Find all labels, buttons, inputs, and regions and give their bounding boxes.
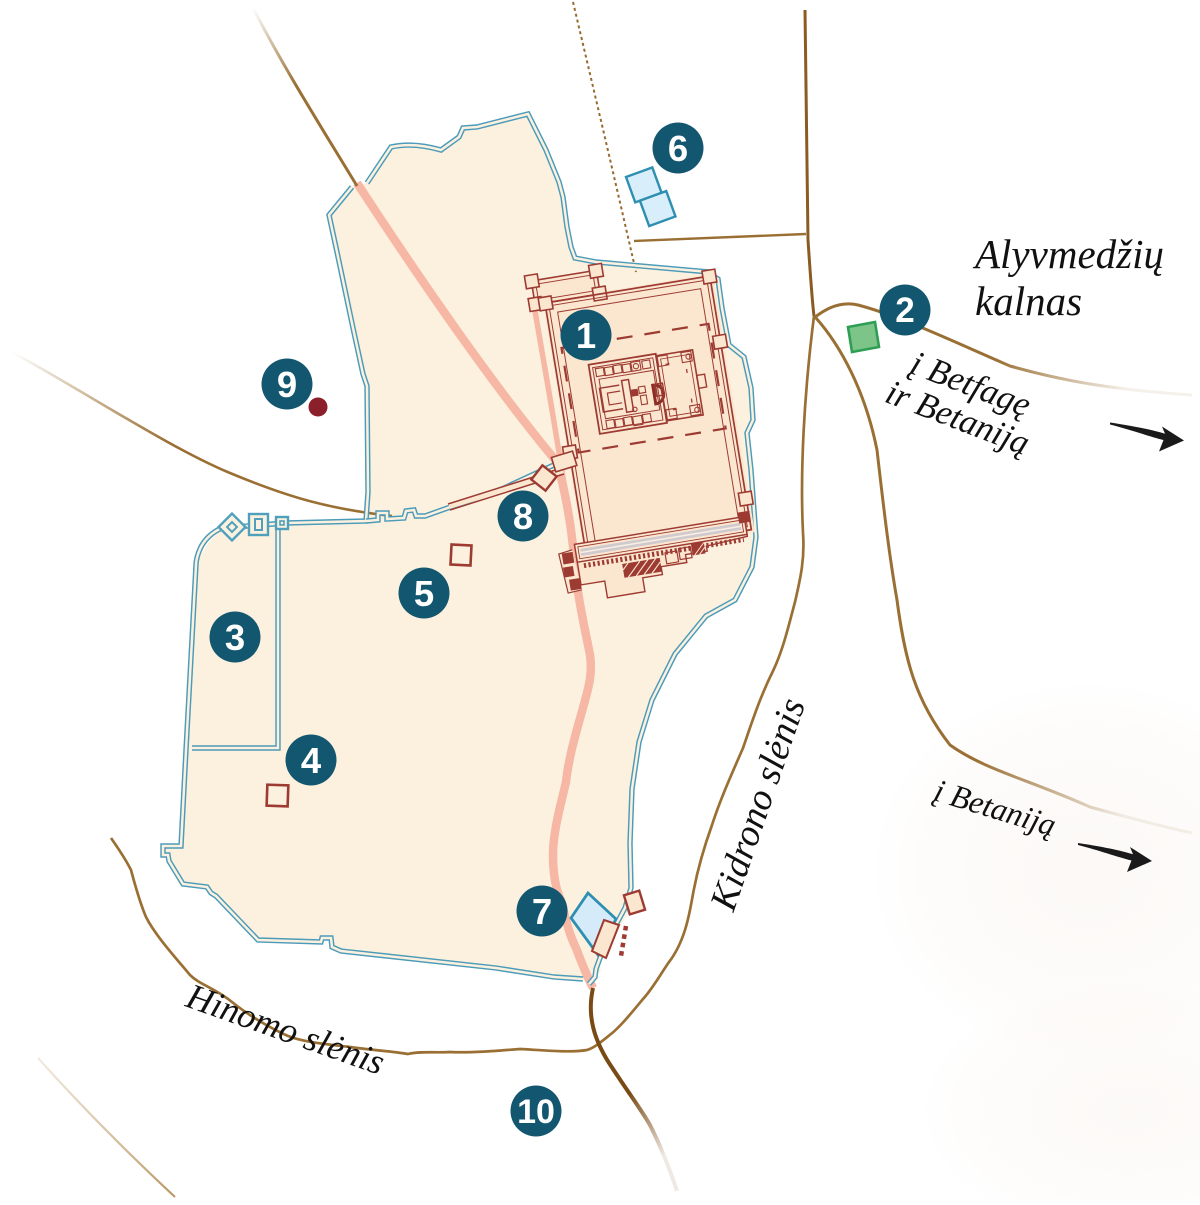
svg-text:kalnas: kalnas	[975, 278, 1082, 324]
svg-text:3: 3	[225, 617, 245, 658]
svg-text:2: 2	[895, 291, 914, 330]
svg-text:4: 4	[301, 740, 322, 781]
svg-text:10: 10	[517, 1093, 555, 1131]
svg-text:8: 8	[513, 496, 533, 537]
svg-text:7: 7	[532, 891, 552, 932]
svg-text:6: 6	[668, 128, 688, 169]
svg-text:5: 5	[414, 573, 434, 614]
svg-text:1: 1	[576, 315, 596, 356]
svg-text:9: 9	[277, 364, 297, 405]
svg-text:Alyvmedžių: Alyvmedžių	[972, 231, 1164, 277]
